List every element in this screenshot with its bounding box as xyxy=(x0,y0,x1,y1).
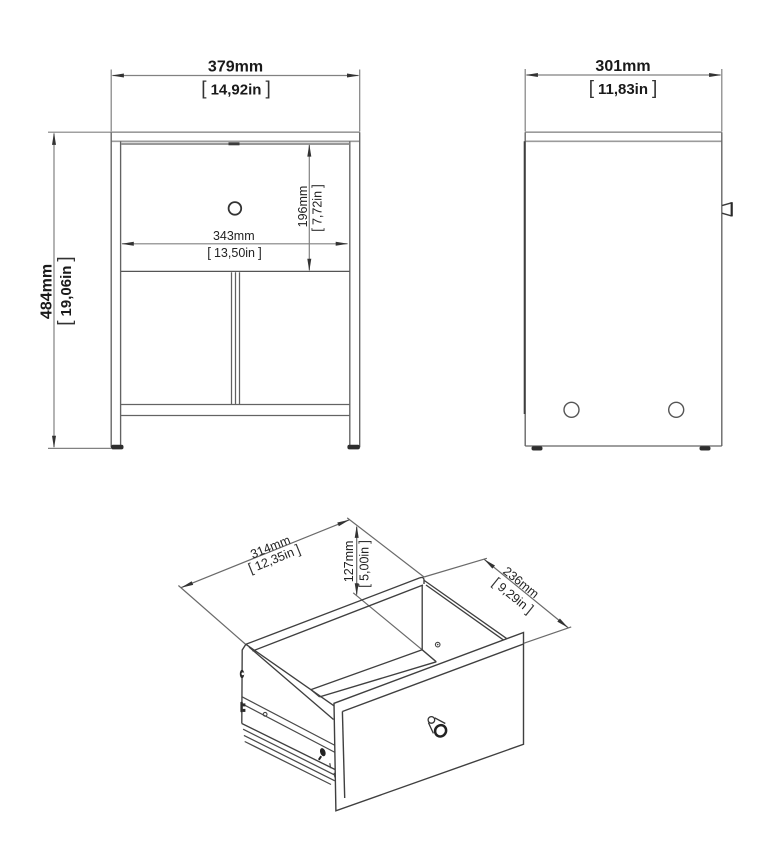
svg-text:[7,72in]: [7,72in] xyxy=(309,184,325,232)
svg-text:127mm: 127mm xyxy=(342,541,356,583)
svg-text:[11,83in]: [11,83in] xyxy=(589,78,658,99)
svg-text:[5,00in]: [5,00in] xyxy=(355,540,371,588)
svg-text:[13,50in]: [13,50in] xyxy=(207,244,262,260)
svg-text:379mm: 379mm xyxy=(208,59,263,76)
svg-text:301mm: 301mm xyxy=(595,58,650,75)
svg-text:343mm: 343mm xyxy=(213,229,255,243)
svg-text:[19,06in]: [19,06in] xyxy=(55,256,76,325)
svg-text:[14,92in]: [14,92in] xyxy=(201,79,270,100)
svg-text:196mm: 196mm xyxy=(296,186,310,228)
svg-text:484mm: 484mm xyxy=(39,264,56,319)
